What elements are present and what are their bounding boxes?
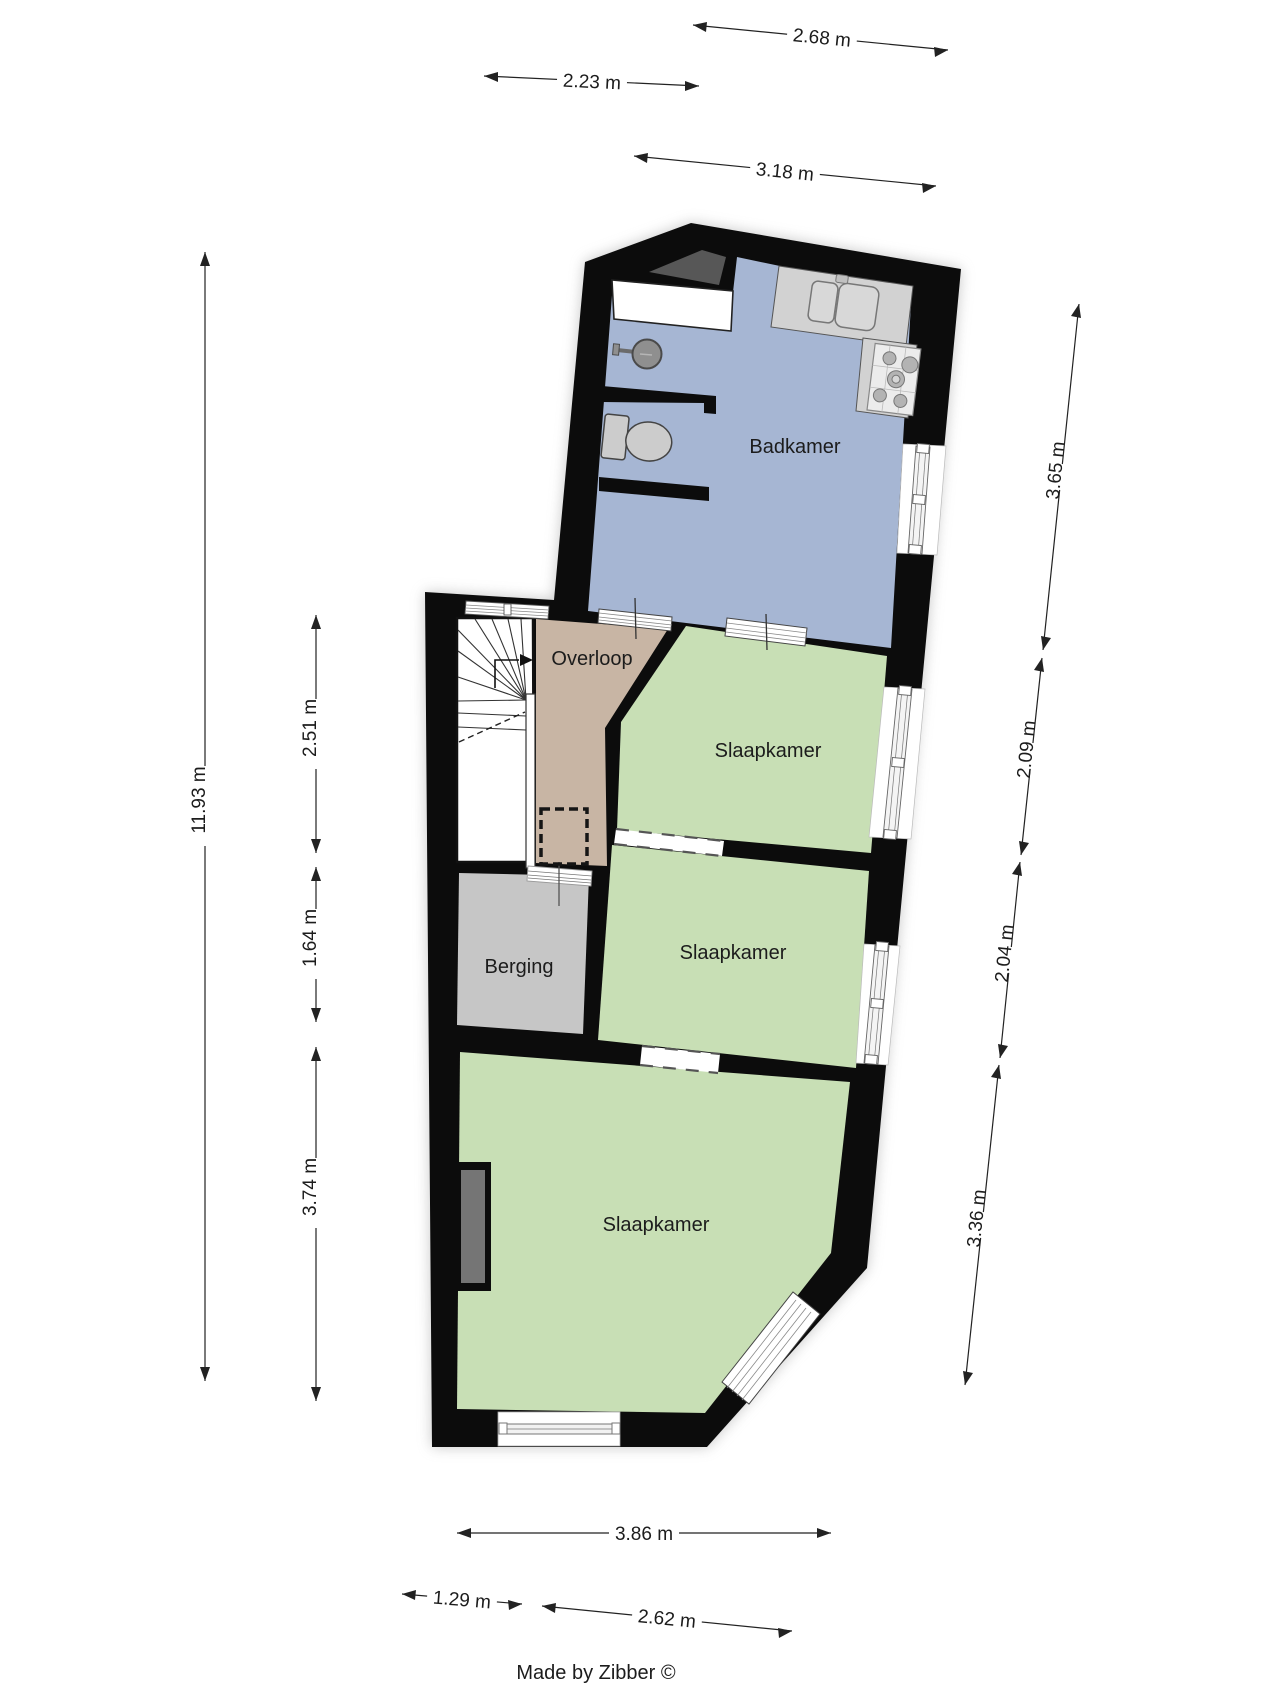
svg-text:Berging: Berging — [485, 956, 554, 978]
svg-text:3.74 m: 3.74 m — [300, 1158, 321, 1216]
svg-text:Slaapkamer: Slaapkamer — [715, 740, 822, 762]
svg-text:Overloop: Overloop — [551, 648, 632, 670]
svg-text:Slaapkamer: Slaapkamer — [680, 942, 787, 964]
svg-text:Badkamer: Badkamer — [749, 436, 840, 458]
svg-text:2.23 m: 2.23 m — [562, 71, 621, 95]
svg-text:Slaapkamer: Slaapkamer — [603, 1214, 710, 1236]
svg-text:2.51 m: 2.51 m — [300, 699, 321, 757]
svg-text:1.64 m: 1.64 m — [300, 909, 321, 967]
svg-text:11.93 m: 11.93 m — [189, 766, 210, 833]
svg-text:Made by Zibber ©: Made by Zibber © — [516, 1662, 676, 1684]
svg-text:3.86 m: 3.86 m — [615, 1524, 673, 1545]
